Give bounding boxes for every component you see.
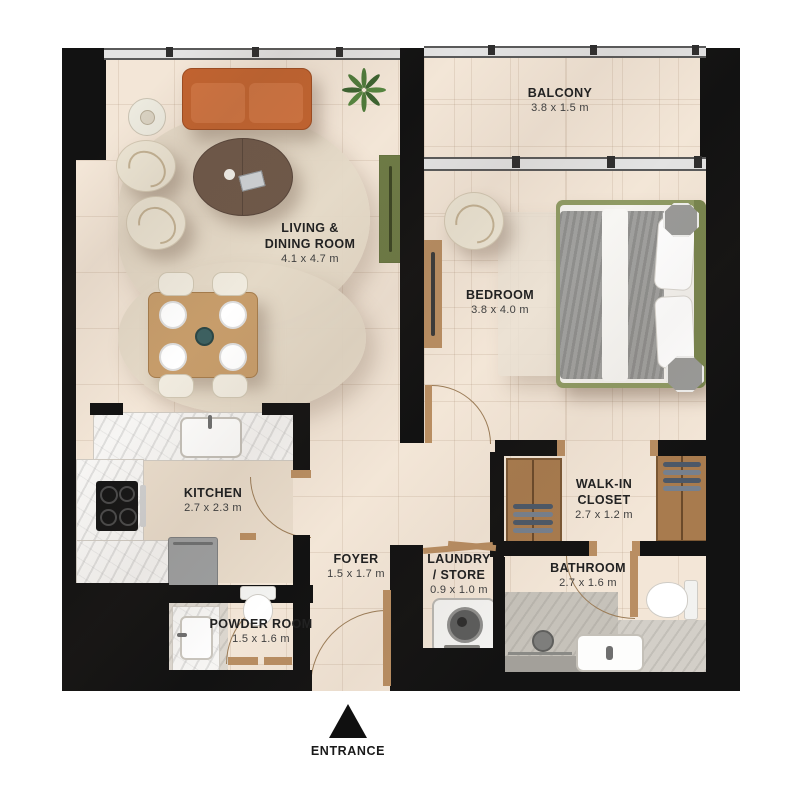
wall-closet-bathroom-a	[493, 541, 589, 556]
room-name: LAUNDRY	[427, 551, 490, 567]
dining-table	[148, 292, 258, 378]
refrigerator	[168, 537, 218, 591]
nightstand	[663, 203, 699, 237]
room-dims: 4.1 x 4.7 m	[265, 252, 356, 267]
label-walk-in-closet: WALK-IN CLOSET 2.7 x 1.2 m	[575, 476, 633, 523]
tv-console	[379, 155, 402, 263]
room-dims: 2.7 x 1.2 m	[575, 508, 633, 523]
wall-kitchen-stub-left	[90, 403, 123, 415]
label-bedroom: BEDROOM 3.8 x 4.0 m	[466, 287, 534, 318]
room-name: KITCHEN	[184, 485, 242, 501]
blanket-fold	[602, 209, 628, 381]
wall-kitchen-stub-right	[262, 403, 293, 415]
washing-machine	[432, 598, 496, 654]
hanging-clothes	[513, 504, 553, 533]
sliding-door-post	[694, 156, 702, 168]
room-name: BATHROOM	[550, 560, 626, 576]
room-name: BEDROOM	[466, 287, 534, 303]
shower-head-icon	[532, 630, 554, 652]
wardrobe	[506, 458, 562, 548]
faucet-icon	[606, 646, 613, 660]
dresser	[424, 240, 442, 348]
room-name: LIVING &	[265, 220, 356, 236]
bedroom-armchair	[444, 192, 504, 250]
bathroom-toilet	[646, 578, 698, 620]
armchair	[116, 140, 176, 192]
entrance-arrow-icon	[329, 704, 367, 738]
room-name: FOYER	[327, 551, 385, 567]
kitchen-door-jamb-top	[291, 470, 311, 478]
wall-bottom-under-powder	[160, 670, 312, 691]
side-table	[128, 98, 166, 136]
wall-laundry-right	[493, 557, 505, 648]
dining-chair	[212, 272, 248, 296]
room-name: CLOSET	[575, 492, 633, 508]
powder-sink	[180, 616, 213, 660]
centerpiece	[195, 327, 214, 346]
room-name: BALCONY	[528, 85, 593, 101]
faucet-icon	[177, 633, 187, 637]
plate	[219, 343, 247, 371]
plate	[159, 343, 187, 371]
wall-closet-bathroom-b	[640, 541, 708, 556]
coffee-table	[193, 138, 293, 216]
sliding-door-post	[512, 156, 520, 168]
bathroom-door-jamb-left	[589, 541, 597, 556]
label-powder-room: POWDER ROOM 1.5 x 1.6 m	[209, 616, 312, 647]
bedroom-door-leaf	[425, 385, 432, 443]
railing-post	[590, 45, 597, 55]
bathroom-door-leaf	[630, 551, 638, 617]
wall-bedroom-closet-b	[658, 440, 708, 456]
entrance-door-leaf	[383, 590, 391, 686]
closet-door-jamb-left	[557, 440, 565, 456]
powder-door-jamb	[264, 657, 292, 665]
balcony-railing	[424, 46, 706, 58]
room-dims: 1.5 x 1.6 m	[209, 632, 312, 647]
closet-door-jamb-right	[650, 440, 658, 456]
wall-kitchen-right-upper	[293, 403, 310, 477]
window-mullion	[252, 47, 259, 57]
room-dims: 2.7 x 1.6 m	[550, 576, 626, 591]
label-balcony: BALCONY 3.8 x 1.5 m	[528, 85, 593, 116]
label-laundry-store: LAUNDRY / STORE 0.9 x 1.0 m	[427, 551, 490, 598]
sofa	[182, 68, 312, 130]
wall-living-bedroom	[400, 48, 424, 443]
shower-rail	[508, 652, 572, 655]
room-name: POWDER ROOM	[209, 616, 312, 632]
wall-laundry-bottom	[390, 648, 505, 691]
kitchen-sink	[180, 417, 242, 458]
window-mullion	[336, 47, 343, 57]
railing-post	[692, 45, 699, 55]
room-dims: 0.9 x 1.0 m	[427, 583, 490, 598]
wall-bedroom-closet-a	[495, 440, 557, 456]
dining-chair	[158, 374, 194, 398]
room-dims: 3.8 x 1.5 m	[528, 101, 593, 116]
wall-bottom-left-block	[62, 583, 169, 691]
wall-left	[62, 48, 76, 593]
label-living-dining: LIVING & DINING ROOM 4.1 x 4.7 m	[265, 220, 356, 267]
armchair	[126, 196, 186, 250]
room-name: WALK-IN	[575, 476, 633, 492]
wall-top-right-block	[700, 48, 740, 162]
entrance-label: ENTRANCE	[311, 744, 385, 758]
balcony-sliding-door	[424, 157, 706, 171]
label-foyer: FOYER 1.5 x 1.7 m	[327, 551, 385, 582]
floor-plan: BALCONY 3.8 x 1.5 m LIVING & DINING ROOM…	[0, 0, 800, 800]
room-dims: 2.7 x 2.3 m	[184, 501, 242, 516]
window-mullion	[166, 47, 173, 57]
plate	[219, 301, 247, 329]
decor-bowl	[224, 169, 235, 180]
plate	[159, 301, 187, 329]
dining-chair	[212, 374, 248, 398]
room-name: DINING ROOM	[265, 236, 356, 252]
bathroom-sink	[576, 634, 644, 672]
room-dims: 1.5 x 1.7 m	[327, 567, 385, 582]
powder-door-leaf	[228, 657, 258, 665]
stove	[96, 481, 138, 531]
plant-icon	[342, 68, 386, 112]
faucet-icon	[208, 415, 212, 429]
dining-chair	[158, 272, 194, 296]
sliding-door-post	[607, 156, 615, 168]
hanging-clothes	[663, 462, 701, 491]
wardrobe	[656, 452, 710, 542]
kitchen-door-jamb-bottom	[240, 533, 256, 540]
nightstand	[666, 356, 704, 392]
railing-post	[488, 45, 495, 55]
label-kitchen: KITCHEN 2.7 x 2.3 m	[184, 485, 242, 516]
wall-kitchen-right-lower	[293, 535, 310, 672]
stove-controls	[140, 485, 146, 527]
room-dims: 3.8 x 4.0 m	[466, 303, 534, 318]
room-name: / STORE	[427, 567, 490, 583]
wall-bottom-right	[500, 672, 740, 691]
label-bathroom: BATHROOM 2.7 x 1.6 m	[550, 560, 626, 591]
